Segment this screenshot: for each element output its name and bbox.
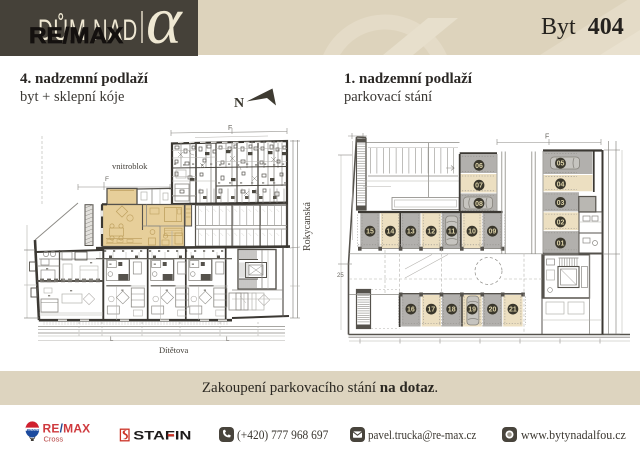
svg-text:18: 18 <box>448 307 456 314</box>
svg-text:12: 12 <box>427 229 435 236</box>
svg-text:11: 11 <box>448 229 456 236</box>
svg-text:08: 08 <box>475 201 483 208</box>
svg-text:01: 01 <box>557 241 565 248</box>
svg-text:06: 06 <box>475 163 483 170</box>
svg-text:02: 02 <box>557 219 565 226</box>
svg-text:15: 15 <box>366 229 374 236</box>
svg-text:Cross: Cross <box>44 435 64 444</box>
svg-text:10: 10 <box>468 229 476 236</box>
svg-text:19: 19 <box>468 307 476 314</box>
svg-text:STAFIN: STAFIN <box>133 430 191 442</box>
svg-text:09: 09 <box>489 229 497 236</box>
svg-text:25: 25 <box>337 273 344 279</box>
svg-text:07: 07 <box>475 183 483 190</box>
svg-text:13: 13 <box>407 229 415 236</box>
svg-text:04: 04 <box>557 181 565 188</box>
svg-text:RE/MAX: RE/MAX <box>27 429 40 433</box>
svg-text:14: 14 <box>387 229 395 236</box>
svg-text:21: 21 <box>509 307 517 314</box>
svg-text:05: 05 <box>557 161 565 168</box>
svg-text:F: F <box>545 134 549 141</box>
svg-text:03: 03 <box>557 200 565 207</box>
svg-text:17: 17 <box>427 307 435 314</box>
svg-text:16: 16 <box>407 307 415 314</box>
svg-text:20: 20 <box>489 307 497 314</box>
svg-text:RE/MAX: RE/MAX <box>43 422 91 436</box>
